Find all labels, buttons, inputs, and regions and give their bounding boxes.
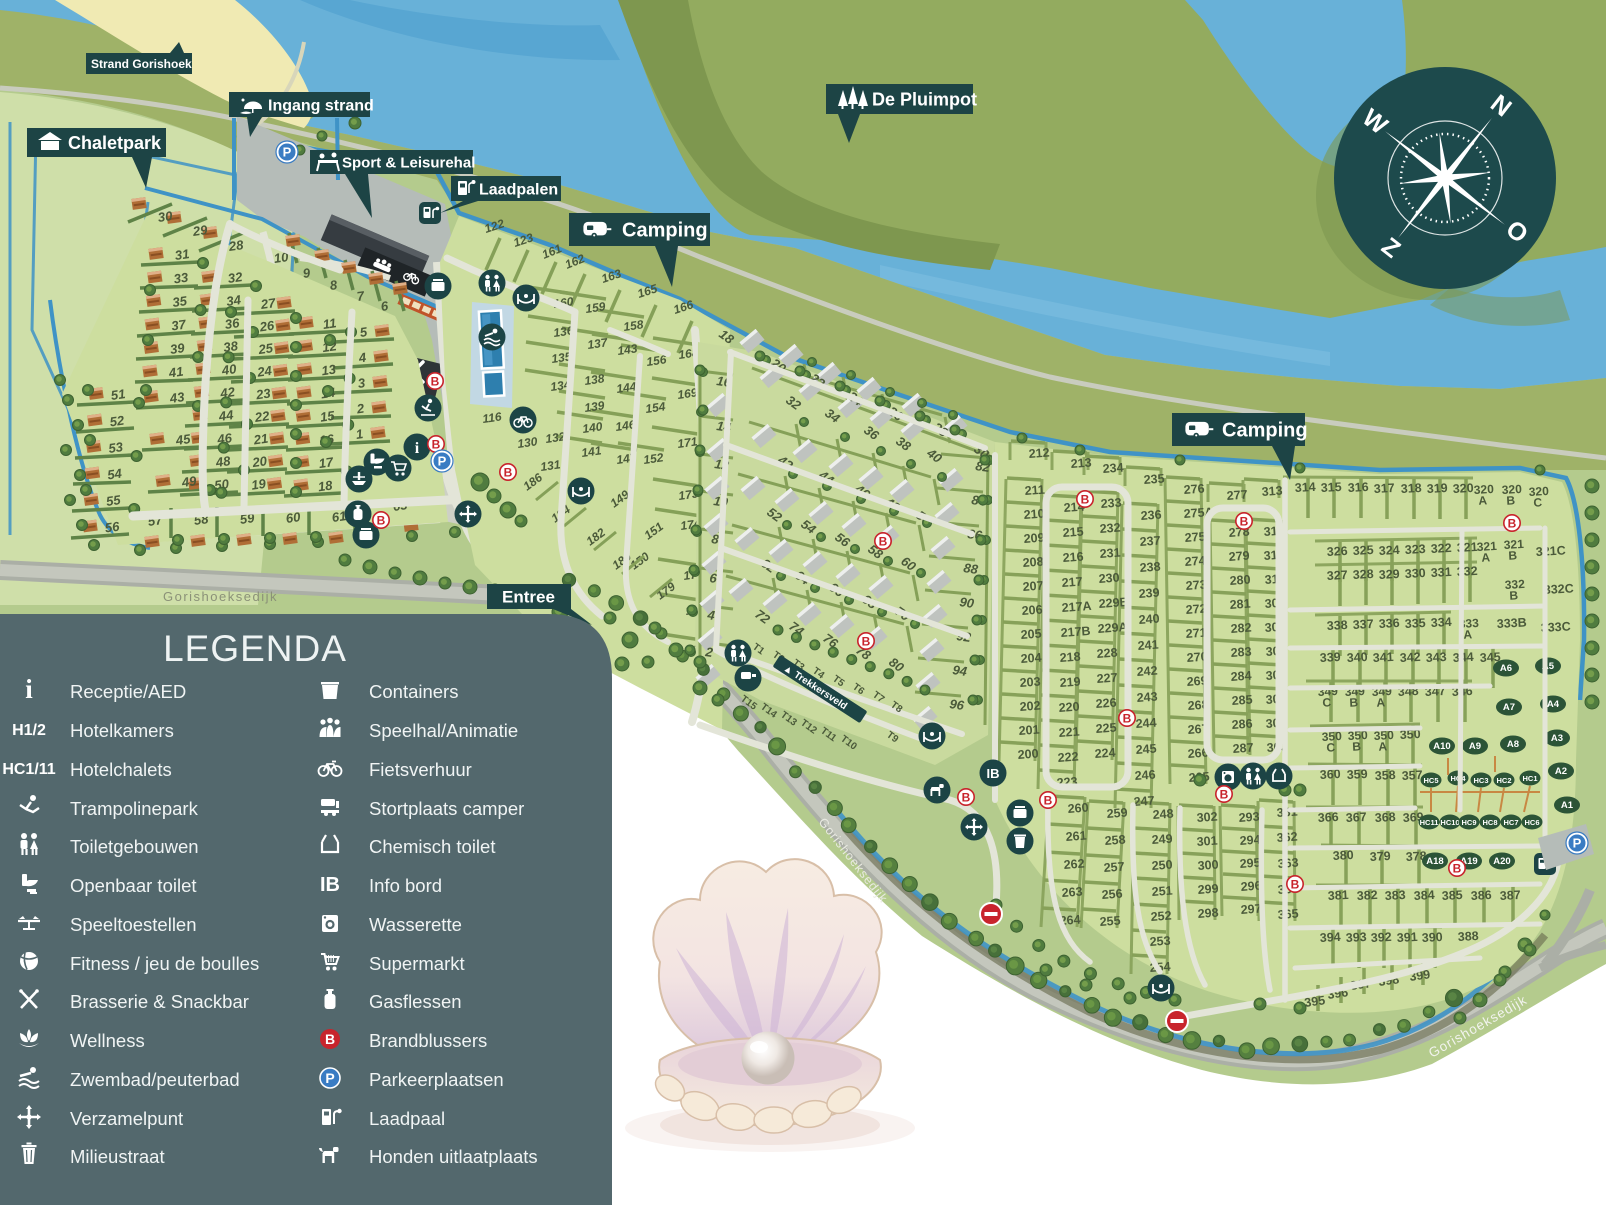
- svg-text:338: 338: [1326, 618, 1348, 633]
- svg-text:B: B: [377, 514, 386, 528]
- svg-text:276: 276: [1183, 482, 1205, 497]
- svg-text:A18: A18: [1426, 856, 1443, 867]
- svg-text:207: 207: [1022, 579, 1044, 594]
- svg-text:Milieustraat: Milieustraat: [70, 1146, 165, 1167]
- svg-text:144: 144: [615, 379, 637, 396]
- svg-text:B: B: [879, 535, 888, 549]
- svg-text:229A: 229A: [1097, 620, 1128, 636]
- svg-text:279: 279: [1228, 549, 1250, 564]
- svg-text:252: 252: [1150, 909, 1172, 924]
- svg-text:141: 141: [580, 443, 602, 460]
- svg-text:212: 212: [1028, 446, 1050, 461]
- svg-text:209: 209: [1023, 531, 1045, 546]
- svg-text:385: 385: [1441, 888, 1463, 903]
- svg-text:248: 248: [1152, 807, 1174, 822]
- svg-text:220: 220: [1058, 700, 1080, 715]
- svg-text:HC8: HC8: [1482, 818, 1497, 827]
- svg-text:HC11: HC11: [1420, 818, 1439, 827]
- svg-text:32: 32: [227, 269, 244, 286]
- svg-text:De Pluimpot: De Pluimpot: [872, 89, 977, 109]
- svg-text:219: 219: [1059, 675, 1081, 690]
- svg-text:330: 330: [1404, 566, 1426, 581]
- svg-text:HC10: HC10: [1440, 818, 1459, 827]
- svg-text:B: B: [1509, 588, 1519, 602]
- svg-text:52: 52: [109, 412, 126, 429]
- svg-text:381: 381: [1327, 888, 1349, 903]
- svg-text:Brandblussers: Brandblussers: [369, 1030, 487, 1051]
- svg-text:393: 393: [1345, 930, 1367, 945]
- svg-text:367: 367: [1345, 810, 1367, 825]
- svg-text:208: 208: [1022, 555, 1044, 570]
- svg-text:P: P: [1573, 836, 1582, 851]
- svg-text:Laadpaal: Laadpaal: [369, 1108, 445, 1129]
- svg-text:A20: A20: [1493, 856, 1510, 867]
- svg-text:21: 21: [252, 431, 269, 448]
- svg-text:26: 26: [258, 318, 276, 335]
- svg-text:318: 318: [1400, 481, 1422, 496]
- svg-text:53: 53: [107, 439, 124, 456]
- svg-text:15: 15: [319, 408, 336, 425]
- svg-text:A3: A3: [1551, 733, 1563, 744]
- svg-text:88: 88: [963, 560, 980, 577]
- svg-text:384: 384: [1413, 888, 1435, 903]
- svg-text:29: 29: [191, 222, 209, 239]
- svg-text:Parkeerplaatsen: Parkeerplaatsen: [369, 1069, 504, 1090]
- svg-text:230: 230: [1098, 571, 1120, 586]
- svg-text:C: C: [1326, 740, 1336, 754]
- svg-text:B: B: [1291, 878, 1300, 892]
- svg-text:341: 341: [1372, 650, 1394, 665]
- svg-text:11: 11: [322, 315, 337, 332]
- svg-text:366: 366: [1317, 810, 1339, 825]
- svg-text:40: 40: [220, 361, 238, 378]
- svg-text:P: P: [438, 454, 447, 469]
- svg-text:316: 316: [1347, 480, 1369, 495]
- svg-text:275: 275: [1184, 530, 1206, 545]
- svg-text:295: 295: [1239, 856, 1261, 871]
- svg-text:216: 216: [1062, 550, 1084, 565]
- svg-text:27: 27: [259, 295, 277, 312]
- svg-text:327: 327: [1326, 568, 1348, 583]
- svg-text:285: 285: [1231, 693, 1253, 708]
- svg-text:P: P: [325, 1070, 334, 1086]
- svg-text:23: 23: [254, 385, 272, 402]
- svg-text:241: 241: [1137, 638, 1159, 653]
- svg-text:A: A: [1463, 627, 1473, 641]
- svg-text:P: P: [283, 145, 292, 160]
- svg-text:Receptie/AED: Receptie/AED: [70, 681, 186, 702]
- svg-text:HC6: HC6: [1524, 818, 1539, 827]
- svg-text:Laadpalen: Laadpalen: [479, 181, 558, 198]
- svg-text:222: 222: [1057, 750, 1079, 765]
- svg-text:158: 158: [622, 317, 644, 334]
- svg-text:131: 131: [539, 457, 561, 474]
- svg-text:37: 37: [170, 316, 187, 333]
- svg-text:B: B: [1081, 493, 1090, 507]
- svg-text:298: 298: [1197, 906, 1219, 921]
- svg-text:231: 231: [1099, 546, 1121, 561]
- svg-text:391: 391: [1396, 930, 1418, 945]
- svg-text:286: 286: [1231, 717, 1253, 732]
- svg-text:232: 232: [1099, 521, 1121, 536]
- svg-text:336: 336: [1378, 616, 1400, 631]
- svg-text:HC1/11: HC1/11: [2, 761, 55, 778]
- svg-text:33: 33: [173, 269, 190, 286]
- svg-text:228: 228: [1096, 646, 1118, 661]
- svg-text:116: 116: [481, 409, 502, 426]
- svg-text:54: 54: [106, 465, 123, 482]
- svg-text:19: 19: [250, 476, 267, 493]
- svg-text:293: 293: [1238, 810, 1260, 825]
- svg-text:394: 394: [1319, 930, 1341, 945]
- svg-text:B: B: [325, 1031, 335, 1047]
- svg-text:Gasflessen: Gasflessen: [369, 991, 462, 1012]
- svg-text:256: 256: [1101, 887, 1123, 902]
- svg-text:200: 200: [1017, 747, 1039, 762]
- svg-text:315: 315: [1320, 480, 1342, 495]
- svg-text:A: A: [1478, 493, 1488, 507]
- svg-text:B: B: [1506, 493, 1516, 507]
- svg-text:43: 43: [168, 389, 186, 406]
- svg-text:44: 44: [217, 407, 235, 424]
- svg-text:281: 281: [1229, 597, 1251, 612]
- svg-text:B: B: [1240, 515, 1249, 529]
- svg-text:Containers: Containers: [369, 681, 458, 702]
- svg-text:B: B: [1508, 548, 1518, 562]
- svg-text:244: 244: [1135, 716, 1157, 731]
- svg-text:130: 130: [516, 434, 538, 451]
- svg-text:388: 388: [1457, 929, 1479, 944]
- svg-text:323: 323: [1404, 542, 1426, 557]
- svg-text:B: B: [1044, 794, 1053, 808]
- svg-text:35: 35: [171, 293, 188, 310]
- svg-text:HC1: HC1: [1522, 774, 1537, 783]
- svg-text:210: 210: [1023, 507, 1045, 522]
- svg-text:243: 243: [1136, 690, 1158, 705]
- svg-text:B: B: [1349, 695, 1359, 709]
- svg-text:365: 365: [1277, 907, 1299, 922]
- svg-text:Hotelkamers: Hotelkamers: [70, 720, 174, 741]
- svg-text:49: 49: [180, 473, 198, 490]
- svg-text:294: 294: [1239, 833, 1261, 848]
- svg-text:Honden uitlaatplaats: Honden uitlaatplaats: [369, 1146, 538, 1167]
- svg-text:17: 17: [318, 454, 335, 471]
- svg-text:A2: A2: [1555, 766, 1567, 777]
- svg-text:202: 202: [1019, 699, 1041, 714]
- svg-text:138: 138: [583, 371, 605, 388]
- svg-text:380: 380: [1332, 848, 1354, 863]
- svg-text:Camping: Camping: [622, 220, 708, 242]
- svg-text:326: 326: [1326, 544, 1348, 559]
- svg-text:332C: 332C: [1543, 581, 1574, 597]
- svg-text:297: 297: [1240, 902, 1262, 917]
- svg-text:Entree: Entree: [502, 588, 555, 607]
- svg-text:363: 363: [1277, 856, 1299, 871]
- svg-text:238: 238: [1139, 560, 1161, 575]
- svg-text:325: 325: [1352, 543, 1374, 558]
- svg-text:213: 213: [1070, 456, 1092, 471]
- svg-text:235: 235: [1143, 472, 1165, 487]
- svg-text:B: B: [431, 375, 440, 389]
- svg-text:245: 245: [1135, 742, 1157, 757]
- svg-text:322: 322: [1430, 541, 1452, 556]
- svg-text:A: A: [1376, 695, 1386, 709]
- svg-text:IB: IB: [987, 766, 1000, 781]
- svg-text:94: 94: [952, 662, 969, 679]
- svg-text:LEGENDA: LEGENDA: [163, 628, 347, 669]
- svg-text:140: 140: [581, 419, 603, 436]
- svg-text:334: 334: [1430, 615, 1452, 630]
- svg-text:137: 137: [586, 335, 609, 352]
- svg-text:A: A: [1378, 739, 1388, 753]
- svg-text:382: 382: [1356, 888, 1378, 903]
- svg-text:280: 280: [1229, 573, 1251, 588]
- svg-text:22: 22: [253, 408, 271, 425]
- svg-text:55: 55: [105, 492, 122, 509]
- svg-text:96: 96: [949, 696, 966, 713]
- svg-text:41: 41: [167, 364, 184, 381]
- svg-text:B: B: [1453, 862, 1462, 876]
- svg-text:B: B: [432, 438, 441, 452]
- svg-text:253: 253: [1149, 934, 1171, 949]
- svg-text:C: C: [1322, 695, 1332, 709]
- svg-text:313: 313: [1261, 484, 1283, 499]
- svg-text:277: 277: [1226, 488, 1248, 503]
- svg-text:139: 139: [583, 398, 605, 415]
- svg-text:283: 283: [1230, 645, 1252, 660]
- svg-text:205: 205: [1020, 627, 1042, 642]
- svg-text:204: 204: [1020, 651, 1042, 666]
- svg-text:154: 154: [644, 399, 666, 416]
- svg-text:C: C: [1533, 495, 1543, 509]
- svg-text:A7: A7: [1503, 702, 1515, 713]
- svg-text:i: i: [25, 674, 33, 704]
- svg-text:34: 34: [225, 292, 242, 309]
- svg-text:257: 257: [1103, 860, 1125, 875]
- svg-text:A8: A8: [1507, 739, 1519, 750]
- svg-text:239: 239: [1138, 586, 1160, 601]
- svg-text:13: 13: [320, 361, 337, 378]
- svg-text:Chemisch toilet: Chemisch toilet: [369, 836, 495, 857]
- svg-text:258: 258: [1104, 833, 1126, 848]
- svg-text:343: 343: [1425, 650, 1447, 665]
- svg-text:201: 201: [1018, 723, 1040, 738]
- svg-text:Speelhal/Animatie: Speelhal/Animatie: [369, 720, 518, 741]
- svg-text:284: 284: [1230, 669, 1252, 684]
- svg-text:263: 263: [1061, 885, 1083, 900]
- svg-text:215: 215: [1062, 525, 1084, 540]
- svg-text:300: 300: [1197, 858, 1219, 873]
- svg-text:A4: A4: [1547, 699, 1560, 710]
- svg-text:i: i: [415, 440, 420, 457]
- svg-text:B: B: [862, 635, 871, 649]
- svg-text:227: 227: [1096, 671, 1118, 686]
- svg-text:48: 48: [214, 453, 232, 470]
- svg-text:246: 246: [1134, 768, 1156, 783]
- svg-text:HC9: HC9: [1461, 818, 1476, 827]
- svg-text:274: 274: [1184, 554, 1206, 569]
- svg-text:211: 211: [1024, 483, 1045, 498]
- svg-text:A10: A10: [1433, 741, 1450, 752]
- svg-text:B: B: [1352, 739, 1362, 753]
- svg-text:217B: 217B: [1060, 624, 1091, 640]
- svg-text:B: B: [504, 466, 513, 480]
- svg-text:A1: A1: [1561, 800, 1574, 811]
- svg-text:Sport & Leisurehal: Sport & Leisurehal: [342, 154, 475, 171]
- svg-text:Fitness / jeu de boulles: Fitness / jeu de boulles: [70, 953, 259, 974]
- svg-text:340: 340: [1346, 650, 1368, 665]
- svg-text:240: 240: [1138, 612, 1160, 627]
- svg-text:234: 234: [1102, 461, 1124, 476]
- svg-text:Speeltoestellen: Speeltoestellen: [70, 914, 197, 935]
- svg-text:HC2: HC2: [1496, 776, 1511, 785]
- svg-text:IB: IB: [320, 874, 340, 896]
- svg-text:282: 282: [1230, 621, 1252, 636]
- svg-text:331: 331: [1430, 565, 1452, 580]
- svg-text:321C: 321C: [1535, 543, 1566, 559]
- svg-text:Openbaar toilet: Openbaar toilet: [70, 875, 197, 896]
- svg-text:31: 31: [174, 246, 190, 263]
- svg-text:357: 357: [1401, 768, 1423, 783]
- svg-text:226: 226: [1095, 696, 1117, 711]
- svg-text:233: 233: [1100, 496, 1122, 511]
- svg-text:Wasserette: Wasserette: [369, 914, 462, 935]
- svg-text:299: 299: [1197, 882, 1219, 897]
- svg-text:Zwembad/peuterbad: Zwembad/peuterbad: [70, 1069, 240, 1090]
- svg-text:259: 259: [1106, 806, 1128, 821]
- svg-text:18: 18: [317, 477, 334, 494]
- svg-text:261: 261: [1065, 829, 1087, 844]
- svg-text:221: 221: [1058, 725, 1080, 740]
- svg-text:390: 390: [1421, 930, 1443, 945]
- svg-text:329: 329: [1378, 567, 1400, 582]
- svg-text:317: 317: [1373, 481, 1395, 496]
- svg-text:143: 143: [616, 341, 638, 358]
- svg-text:A: A: [1481, 550, 1491, 564]
- svg-text:368: 368: [1374, 810, 1396, 825]
- svg-text:339: 339: [1319, 650, 1341, 665]
- svg-text:333B: 333B: [1496, 615, 1527, 631]
- svg-text:25: 25: [256, 340, 274, 357]
- svg-text:328: 328: [1352, 567, 1374, 582]
- svg-text:302: 302: [1196, 810, 1218, 825]
- svg-text:335: 335: [1404, 616, 1426, 631]
- svg-text:39: 39: [169, 340, 186, 357]
- svg-text:Chaletpark: Chaletpark: [68, 133, 162, 153]
- svg-text:Strand Gorishoek: Strand Gorishoek: [91, 57, 192, 71]
- svg-text:301: 301: [1196, 834, 1218, 849]
- svg-text:Stortplaats camper: Stortplaats camper: [369, 798, 524, 819]
- svg-text:B: B: [1508, 517, 1517, 531]
- svg-text:Toiletgebouwen: Toiletgebouwen: [70, 836, 199, 857]
- svg-text:Verzamelpunt: Verzamelpunt: [70, 1108, 183, 1129]
- svg-text:218: 218: [1059, 650, 1081, 665]
- svg-text:225: 225: [1095, 721, 1117, 736]
- svg-text:337: 337: [1352, 617, 1374, 632]
- svg-text:262: 262: [1063, 857, 1085, 872]
- svg-text:387: 387: [1499, 888, 1521, 903]
- svg-text:Ingang strand: Ingang strand: [268, 97, 374, 114]
- svg-text:Trampolinepark: Trampolinepark: [70, 798, 199, 819]
- svg-text:A6: A6: [1500, 663, 1512, 674]
- svg-text:392: 392: [1370, 930, 1392, 945]
- svg-text:386: 386: [1470, 888, 1492, 903]
- svg-text:Camping: Camping: [1222, 420, 1308, 442]
- svg-text:24: 24: [255, 363, 273, 380]
- svg-text:250: 250: [1151, 858, 1173, 873]
- svg-text:Wellness: Wellness: [70, 1030, 145, 1051]
- svg-text:224: 224: [1094, 746, 1116, 761]
- svg-text:HC3: HC3: [1473, 776, 1488, 785]
- svg-text:287: 287: [1232, 741, 1254, 756]
- svg-text:217A: 217A: [1061, 599, 1092, 615]
- svg-text:Supermarkt: Supermarkt: [369, 953, 465, 974]
- svg-text:319: 319: [1426, 481, 1448, 496]
- svg-text:B: B: [1220, 788, 1229, 802]
- svg-text:260: 260: [1067, 801, 1089, 816]
- svg-text:159: 159: [584, 299, 606, 316]
- svg-text:152: 152: [642, 450, 664, 467]
- svg-text:324: 324: [1378, 543, 1400, 558]
- svg-text:237: 237: [1139, 534, 1161, 549]
- svg-text:242: 242: [1136, 664, 1158, 679]
- svg-text:236: 236: [1140, 508, 1162, 523]
- svg-text:251: 251: [1151, 884, 1173, 899]
- svg-text:342: 342: [1399, 650, 1421, 665]
- svg-text:320: 320: [1452, 481, 1474, 496]
- svg-text:229B: 229B: [1098, 595, 1129, 611]
- svg-text:20: 20: [250, 453, 268, 470]
- svg-text:B: B: [962, 791, 971, 805]
- svg-text:HC7: HC7: [1503, 818, 1518, 827]
- svg-text:A9: A9: [1469, 741, 1481, 752]
- svg-text:206: 206: [1021, 603, 1043, 618]
- svg-text:B: B: [1123, 712, 1132, 726]
- svg-text:217: 217: [1061, 575, 1083, 590]
- svg-text:Fietsverhuur: Fietsverhuur: [369, 759, 472, 780]
- svg-text:249: 249: [1151, 832, 1173, 847]
- svg-text:383: 383: [1384, 888, 1406, 903]
- svg-text:H1/2: H1/2: [12, 722, 46, 739]
- svg-text:Gorishoeksedijk: Gorishoeksedijk: [163, 589, 278, 604]
- svg-text:379: 379: [1369, 849, 1391, 864]
- svg-text:358: 358: [1374, 768, 1396, 783]
- svg-text:247: 247: [1133, 794, 1155, 809]
- svg-text:45: 45: [174, 431, 192, 448]
- svg-text:255: 255: [1099, 914, 1121, 929]
- svg-text:Hotelchalets: Hotelchalets: [70, 759, 172, 780]
- svg-text:203: 203: [1019, 675, 1041, 690]
- svg-text:30: 30: [157, 208, 174, 225]
- svg-text:Brasserie & Snackbar: Brasserie & Snackbar: [70, 991, 249, 1012]
- svg-text:HC5: HC5: [1423, 776, 1438, 785]
- svg-text:314: 314: [1294, 480, 1316, 495]
- svg-text:56: 56: [104, 518, 121, 535]
- svg-text:51: 51: [110, 386, 126, 403]
- svg-text:Info bord: Info bord: [369, 875, 442, 896]
- svg-text:90: 90: [959, 594, 976, 611]
